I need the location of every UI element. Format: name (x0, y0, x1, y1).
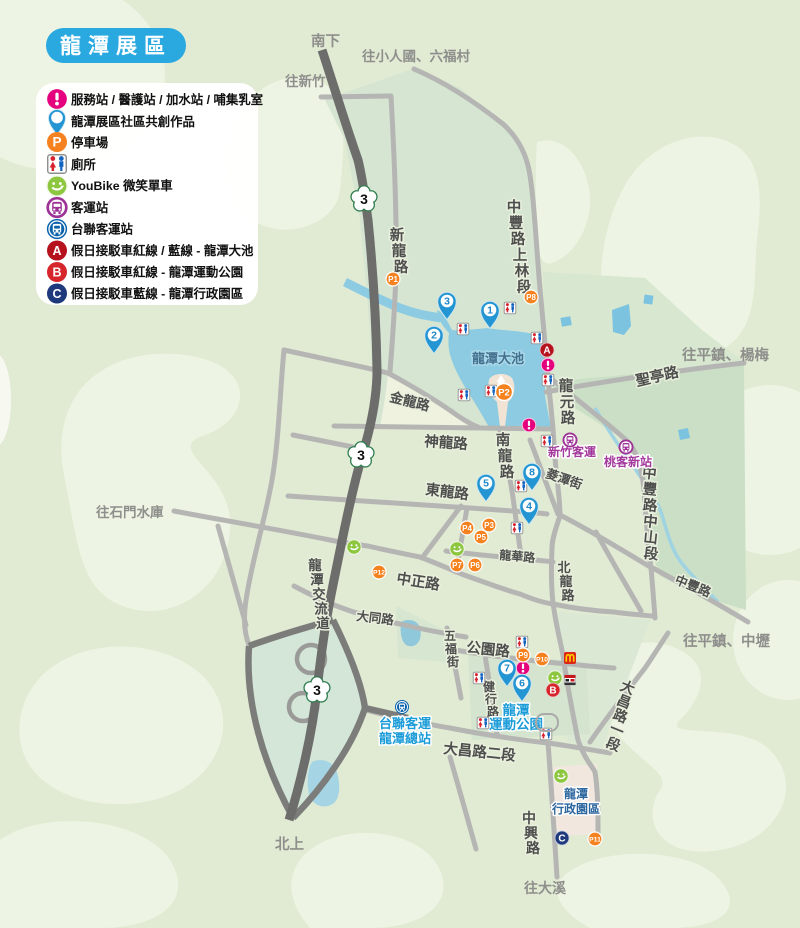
svg-text:P4: P4 (462, 524, 472, 533)
svg-text:P12: P12 (373, 570, 385, 577)
svg-text:4: 4 (526, 501, 532, 513)
svg-text:P11: P11 (589, 837, 601, 844)
svg-text:P7: P7 (452, 561, 462, 570)
svg-text:1: 1 (487, 305, 493, 317)
svg-text:往新竹: 往新竹 (285, 73, 326, 89)
svg-text:假日接駁車藍線 - 龍潭行政園區: 假日接駁車藍線 - 龍潭行政園區 (71, 286, 243, 301)
svg-text:B: B (52, 265, 61, 279)
svg-text:往平鎮、楊梅: 往平鎮、楊梅 (682, 346, 769, 364)
svg-text:台聯客運龍潭總站: 台聯客運龍潭總站 (379, 716, 431, 746)
svg-text:服務站 / 醫護站 / 加水站 / 哺集乳室: 服務站 / 醫護站 / 加水站 / 哺集乳室 (71, 92, 263, 107)
svg-text:龍潭展區: 龍潭展區 (60, 34, 172, 58)
svg-text:8: 8 (529, 467, 535, 479)
svg-text:P10: P10 (536, 657, 548, 664)
svg-text:龍潭大池: 龍潭大池 (472, 351, 524, 366)
svg-text:P8: P8 (526, 293, 536, 302)
svg-text:5: 5 (483, 478, 489, 490)
svg-text:台聯客運站: 台聯客運站 (71, 222, 134, 237)
svg-text:龍潭展區社區共創作品: 龍潭展區社區共創作品 (71, 114, 195, 129)
svg-text:客運站: 客運站 (70, 200, 109, 215)
svg-text:3: 3 (444, 296, 450, 308)
svg-text:C: C (558, 834, 565, 845)
svg-text:往平鎮、中壢: 往平鎮、中壢 (683, 632, 770, 650)
svg-text:廁所: 廁所 (71, 157, 96, 172)
svg-text:6: 6 (519, 678, 525, 690)
svg-text:B: B (549, 686, 556, 697)
svg-text:往小人國、六福村: 往小人國、六福村 (362, 48, 470, 64)
svg-text:P6: P6 (470, 561, 480, 570)
svg-text:往石門水庫: 往石門水庫 (96, 504, 164, 520)
svg-text:北上: 北上 (275, 836, 304, 853)
svg-text:7: 7 (504, 663, 510, 675)
svg-text:假日接駁車紅線 - 龍潭運動公園: 假日接駁車紅線 - 龍潭運動公園 (71, 265, 243, 280)
svg-text:南下: 南下 (311, 32, 340, 50)
svg-text:YouBike 微笑單車: YouBike 微笑單車 (71, 178, 173, 193)
svg-text:P9: P9 (518, 651, 528, 660)
svg-text:A: A (52, 244, 61, 258)
svg-text:往大溪: 往大溪 (524, 880, 567, 896)
svg-text:假日接駁車紅線 / 藍線 - 龍潭大池: 假日接駁車紅線 / 藍線 - 龍潭大池 (71, 243, 254, 258)
svg-text:P5: P5 (476, 533, 486, 542)
svg-text:P1: P1 (388, 275, 398, 284)
svg-text:C: C (52, 287, 61, 301)
svg-text:龍元路: 龍元路 (559, 377, 576, 427)
svg-text:P: P (52, 135, 61, 150)
svg-text:P3: P3 (484, 521, 494, 530)
svg-text:2: 2 (431, 330, 437, 342)
svg-text:桃客新站: 桃客新站 (604, 454, 652, 469)
svg-text:A: A (543, 346, 550, 357)
svg-text:停車場: 停車場 (71, 135, 109, 150)
svg-text:P2: P2 (498, 388, 510, 399)
